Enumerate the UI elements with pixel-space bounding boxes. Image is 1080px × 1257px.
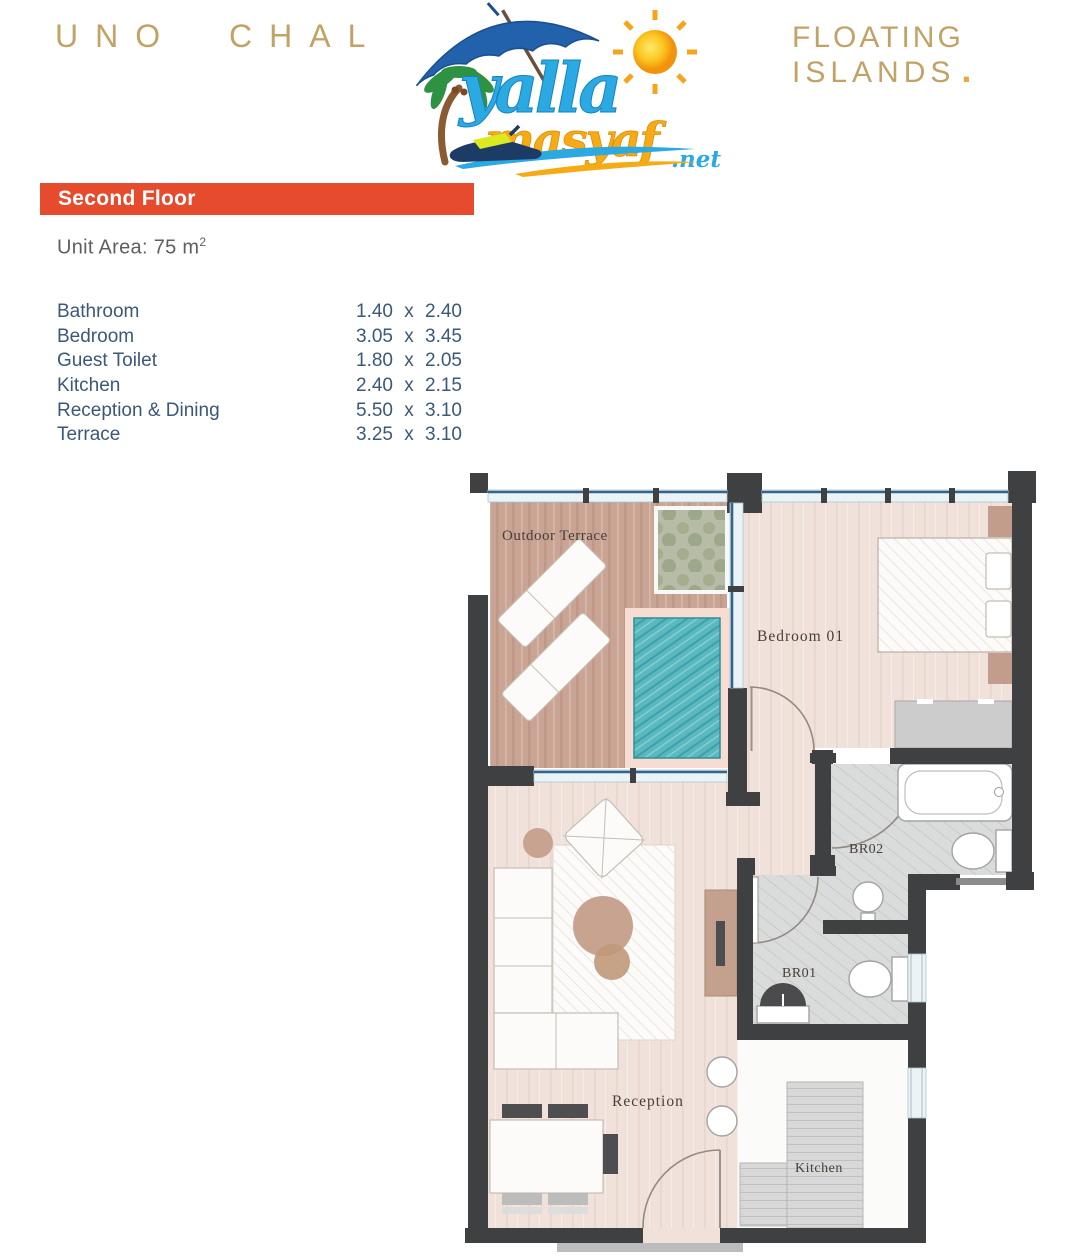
room-width: 2.40: [345, 375, 393, 397]
kitchen-counter: [787, 1082, 863, 1228]
table-row: Kitchen 2.40 x 2.15: [57, 374, 485, 399]
stool: [707, 1057, 737, 1087]
dimensions-table: Bathroom 1.40 x 2.40 Bedroom 3.05 x 3.45…: [57, 300, 485, 448]
stool: [707, 1106, 737, 1136]
sofa: [494, 868, 552, 1013]
wardrobe: [895, 701, 1012, 748]
table-row: Bathroom 1.40 x 2.40: [57, 300, 485, 325]
watermark-logo: yalla masyaf .net: [393, 0, 730, 178]
entrance-threshold: [643, 1228, 720, 1243]
pillow: [986, 553, 1011, 589]
label-bedroom-01: Bedroom 01: [757, 628, 844, 645]
table-row: Bedroom 3.05 x 3.45: [57, 325, 485, 350]
room-depth: 2.40: [425, 301, 485, 323]
label-br02: BR02: [849, 842, 884, 857]
nightstand: [988, 653, 1013, 684]
room-depth: 2.15: [425, 375, 485, 397]
dining-table: [490, 1120, 603, 1193]
label-outdoor-terrace: Outdoor Terrace: [502, 528, 608, 544]
brand-dot: .: [961, 49, 976, 90]
room-width: 3.05: [345, 326, 393, 348]
project-title: UNO CHAL: [55, 18, 382, 55]
dim-separator: x: [393, 350, 425, 372]
brand-line1: FLOATING: [792, 20, 1032, 55]
dim-separator: x: [393, 326, 425, 348]
room-width: 3.25: [345, 424, 393, 446]
room-depth: 2.05: [425, 350, 485, 372]
room-name: Guest Toilet: [57, 350, 345, 372]
tv: [716, 921, 725, 966]
floor-plan: Outdoor Terrace Bedroom 01 BR02 BR01 Rec…: [440, 460, 1060, 1257]
room-name: Bathroom: [57, 301, 345, 323]
room-name: Kitchen: [57, 375, 345, 397]
unit-area: Unit Area: 75 m2: [57, 235, 206, 260]
dim-separator: x: [393, 301, 425, 323]
table-row: Terrace 3.25 x 3.10: [57, 423, 485, 448]
pillow: [986, 601, 1011, 637]
tub-faucet: [995, 788, 1004, 797]
bedroom-furniture: [878, 506, 1013, 748]
side-table: [523, 828, 553, 858]
brand-line2: ISLANDS.: [792, 55, 1032, 90]
dining-chair: [502, 1193, 542, 1205]
wardrobe-handle: [917, 699, 933, 704]
unit-area-value: 75 m: [154, 237, 200, 259]
corner-basin-base: [757, 1006, 809, 1023]
room-width: 5.50: [345, 400, 393, 422]
sideboard: [603, 1134, 618, 1174]
brand-line2-text: ISLANDS: [792, 56, 955, 89]
room-depth: 3.10: [425, 400, 485, 422]
floor-banner: Second Floor: [40, 183, 474, 215]
kitchen-counter: [740, 1163, 787, 1226]
sink-basin: [853, 882, 883, 912]
brand-logo: FLOATING ISLANDS.: [792, 20, 1032, 90]
room-name: Terrace: [57, 424, 345, 446]
dining-chair: [502, 1104, 542, 1118]
dining-chair: [548, 1193, 588, 1205]
dining-chair: [548, 1104, 588, 1118]
dim-separator: x: [393, 424, 425, 446]
label-kitchen: Kitchen: [795, 1161, 843, 1176]
nightstand: [988, 506, 1013, 537]
table-row: Reception & Dining 5.50 x 3.10: [57, 398, 485, 423]
label-reception: Reception: [612, 1093, 684, 1110]
dim-separator: x: [393, 375, 425, 397]
flyer-page: UNO CHAL FLOATING ISLANDS.: [0, 0, 1080, 1257]
room-depth: 3.45: [425, 326, 485, 348]
plunge-pool: [634, 618, 720, 758]
toilet-tank: [892, 957, 908, 1001]
room-name: Bedroom: [57, 326, 345, 348]
sun-icon: [613, 10, 697, 94]
planter-bed: [656, 508, 727, 592]
toilet-bowl: [849, 961, 891, 997]
room-width: 1.40: [345, 301, 393, 323]
label-br01: BR01: [782, 966, 817, 981]
dim-separator: x: [393, 400, 425, 422]
table-row: Guest Toilet 1.80 x 2.05: [57, 349, 485, 374]
toilet-bowl: [952, 833, 994, 869]
unit-area-sup: 2: [199, 235, 206, 249]
toilet-tank: [996, 830, 1012, 872]
room-name: Reception & Dining: [57, 400, 345, 422]
room-depth: 3.10: [425, 424, 485, 446]
room-width: 1.80: [345, 350, 393, 372]
unit-area-label: Unit Area:: [57, 237, 148, 259]
corridor-floor: [747, 688, 815, 782]
coffee-table-small: [594, 944, 630, 980]
wardrobe-handle: [978, 699, 994, 704]
